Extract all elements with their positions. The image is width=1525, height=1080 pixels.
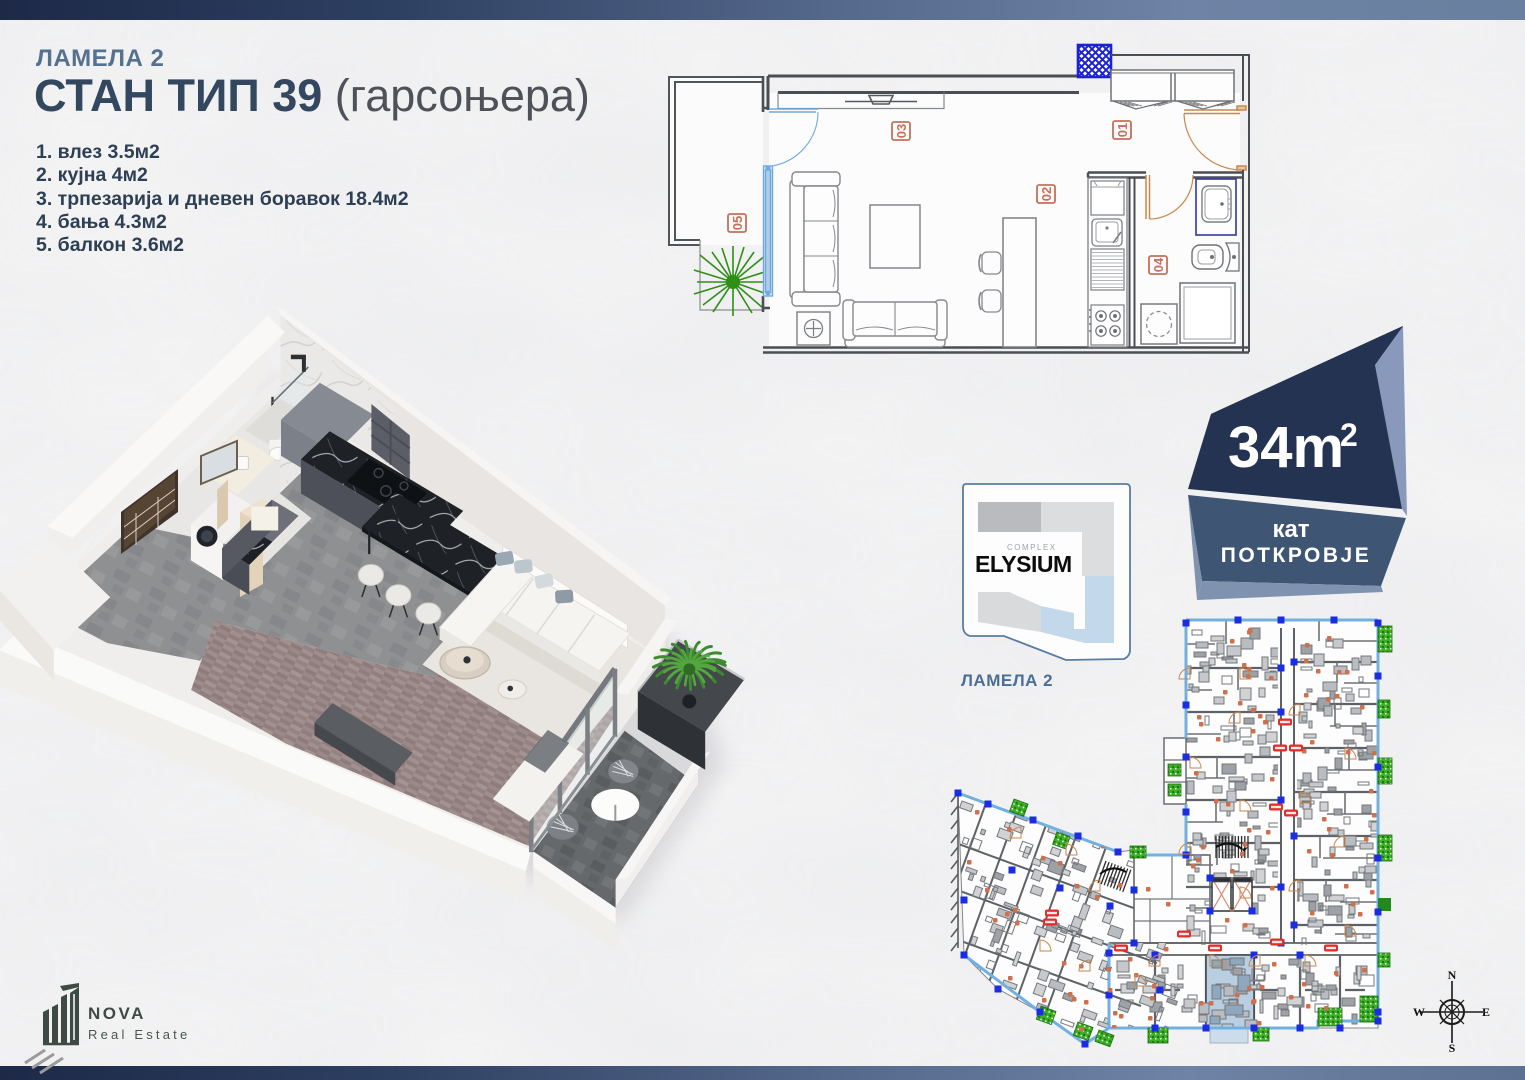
svg-text:01: 01 [1115,123,1130,137]
svg-text:S: S [1449,1041,1456,1055]
svg-text:E: E [1482,1005,1490,1019]
svg-text:05: 05 [730,216,745,230]
svg-text:04: 04 [1151,257,1166,272]
svg-text:W: W [1413,1005,1425,1019]
svg-text:2: 2 [1340,417,1358,453]
svg-text:34m: 34m [1228,415,1344,480]
svg-text:кат: кат [1272,516,1309,543]
svg-text:ПОТКРОВЈЕ: ПОТКРОВЈЕ [1221,544,1372,567]
svg-text:03: 03 [894,124,909,138]
svg-text:02: 02 [1039,187,1054,201]
svg-text:N: N [1448,968,1457,982]
svg-text:ELYSIUM: ELYSIUM [975,551,1072,577]
